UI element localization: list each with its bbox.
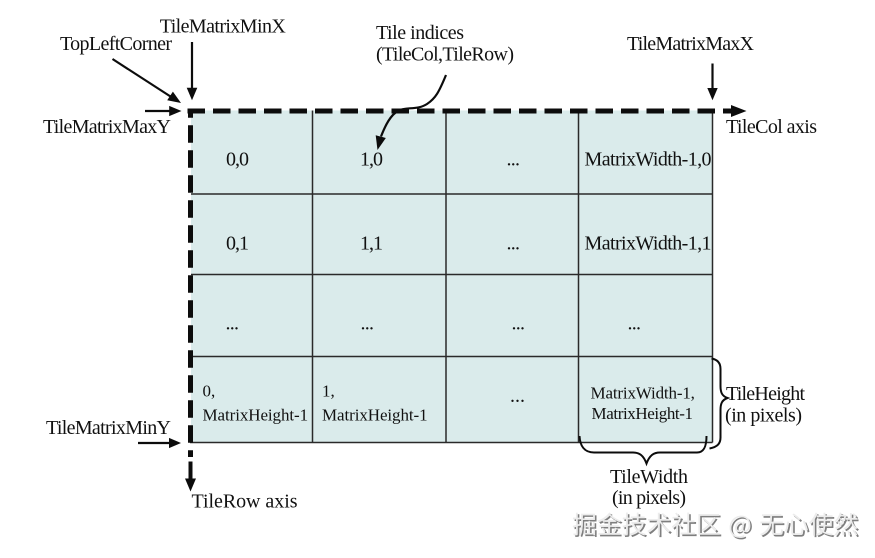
svg-text:TileHeight: TileHeight bbox=[726, 383, 805, 405]
svg-text:(in pixels): (in pixels) bbox=[612, 487, 686, 509]
svg-text:0,0: 0,0 bbox=[226, 149, 249, 171]
svg-text:...: ... bbox=[510, 385, 525, 407]
svg-text:MatrixWidth-1,: MatrixWidth-1, bbox=[591, 384, 695, 403]
svg-text:...: ... bbox=[507, 233, 521, 255]
svg-text:TileRow axis: TileRow axis bbox=[192, 491, 298, 513]
svg-text:(TileCol,TileRow): (TileCol,TileRow) bbox=[376, 44, 514, 66]
svg-text:1,0: 1,0 bbox=[360, 149, 383, 171]
svg-text:...: ... bbox=[361, 313, 375, 335]
svg-text:TileWidth: TileWidth bbox=[610, 466, 688, 488]
svg-text:TileMatrixMaxY: TileMatrixMaxY bbox=[43, 116, 171, 138]
svg-text:MatrixWidth-1,1: MatrixWidth-1,1 bbox=[585, 233, 712, 255]
svg-text:MatrixHeight-1: MatrixHeight-1 bbox=[592, 404, 694, 423]
svg-text:...: ... bbox=[507, 149, 521, 171]
svg-text:Tile indices: Tile indices bbox=[376, 22, 464, 44]
svg-text:TileMatrixMinY: TileMatrixMinY bbox=[46, 417, 171, 439]
svg-text:TileMatrixMinX: TileMatrixMinX bbox=[160, 16, 287, 38]
svg-text:...: ... bbox=[226, 313, 240, 335]
svg-text:0,: 0, bbox=[203, 382, 216, 401]
svg-text:MatrixHeight-1: MatrixHeight-1 bbox=[322, 406, 428, 425]
svg-text:...: ... bbox=[512, 313, 526, 335]
svg-text:0,1: 0,1 bbox=[226, 233, 249, 255]
svg-text:TileCol axis: TileCol axis bbox=[726, 116, 817, 138]
svg-text:MatrixWidth-1,0: MatrixWidth-1,0 bbox=[585, 149, 712, 171]
svg-text:...: ... bbox=[628, 313, 642, 335]
svg-text:TileMatrixMaxX: TileMatrixMaxX bbox=[627, 33, 755, 55]
svg-text:TopLeftCorner: TopLeftCorner bbox=[60, 33, 172, 55]
svg-text:1,1: 1,1 bbox=[360, 233, 383, 255]
svg-text:(in pixels): (in pixels) bbox=[725, 405, 802, 427]
svg-text:1,: 1, bbox=[322, 382, 335, 401]
svg-text:MatrixHeight-1: MatrixHeight-1 bbox=[203, 406, 309, 425]
